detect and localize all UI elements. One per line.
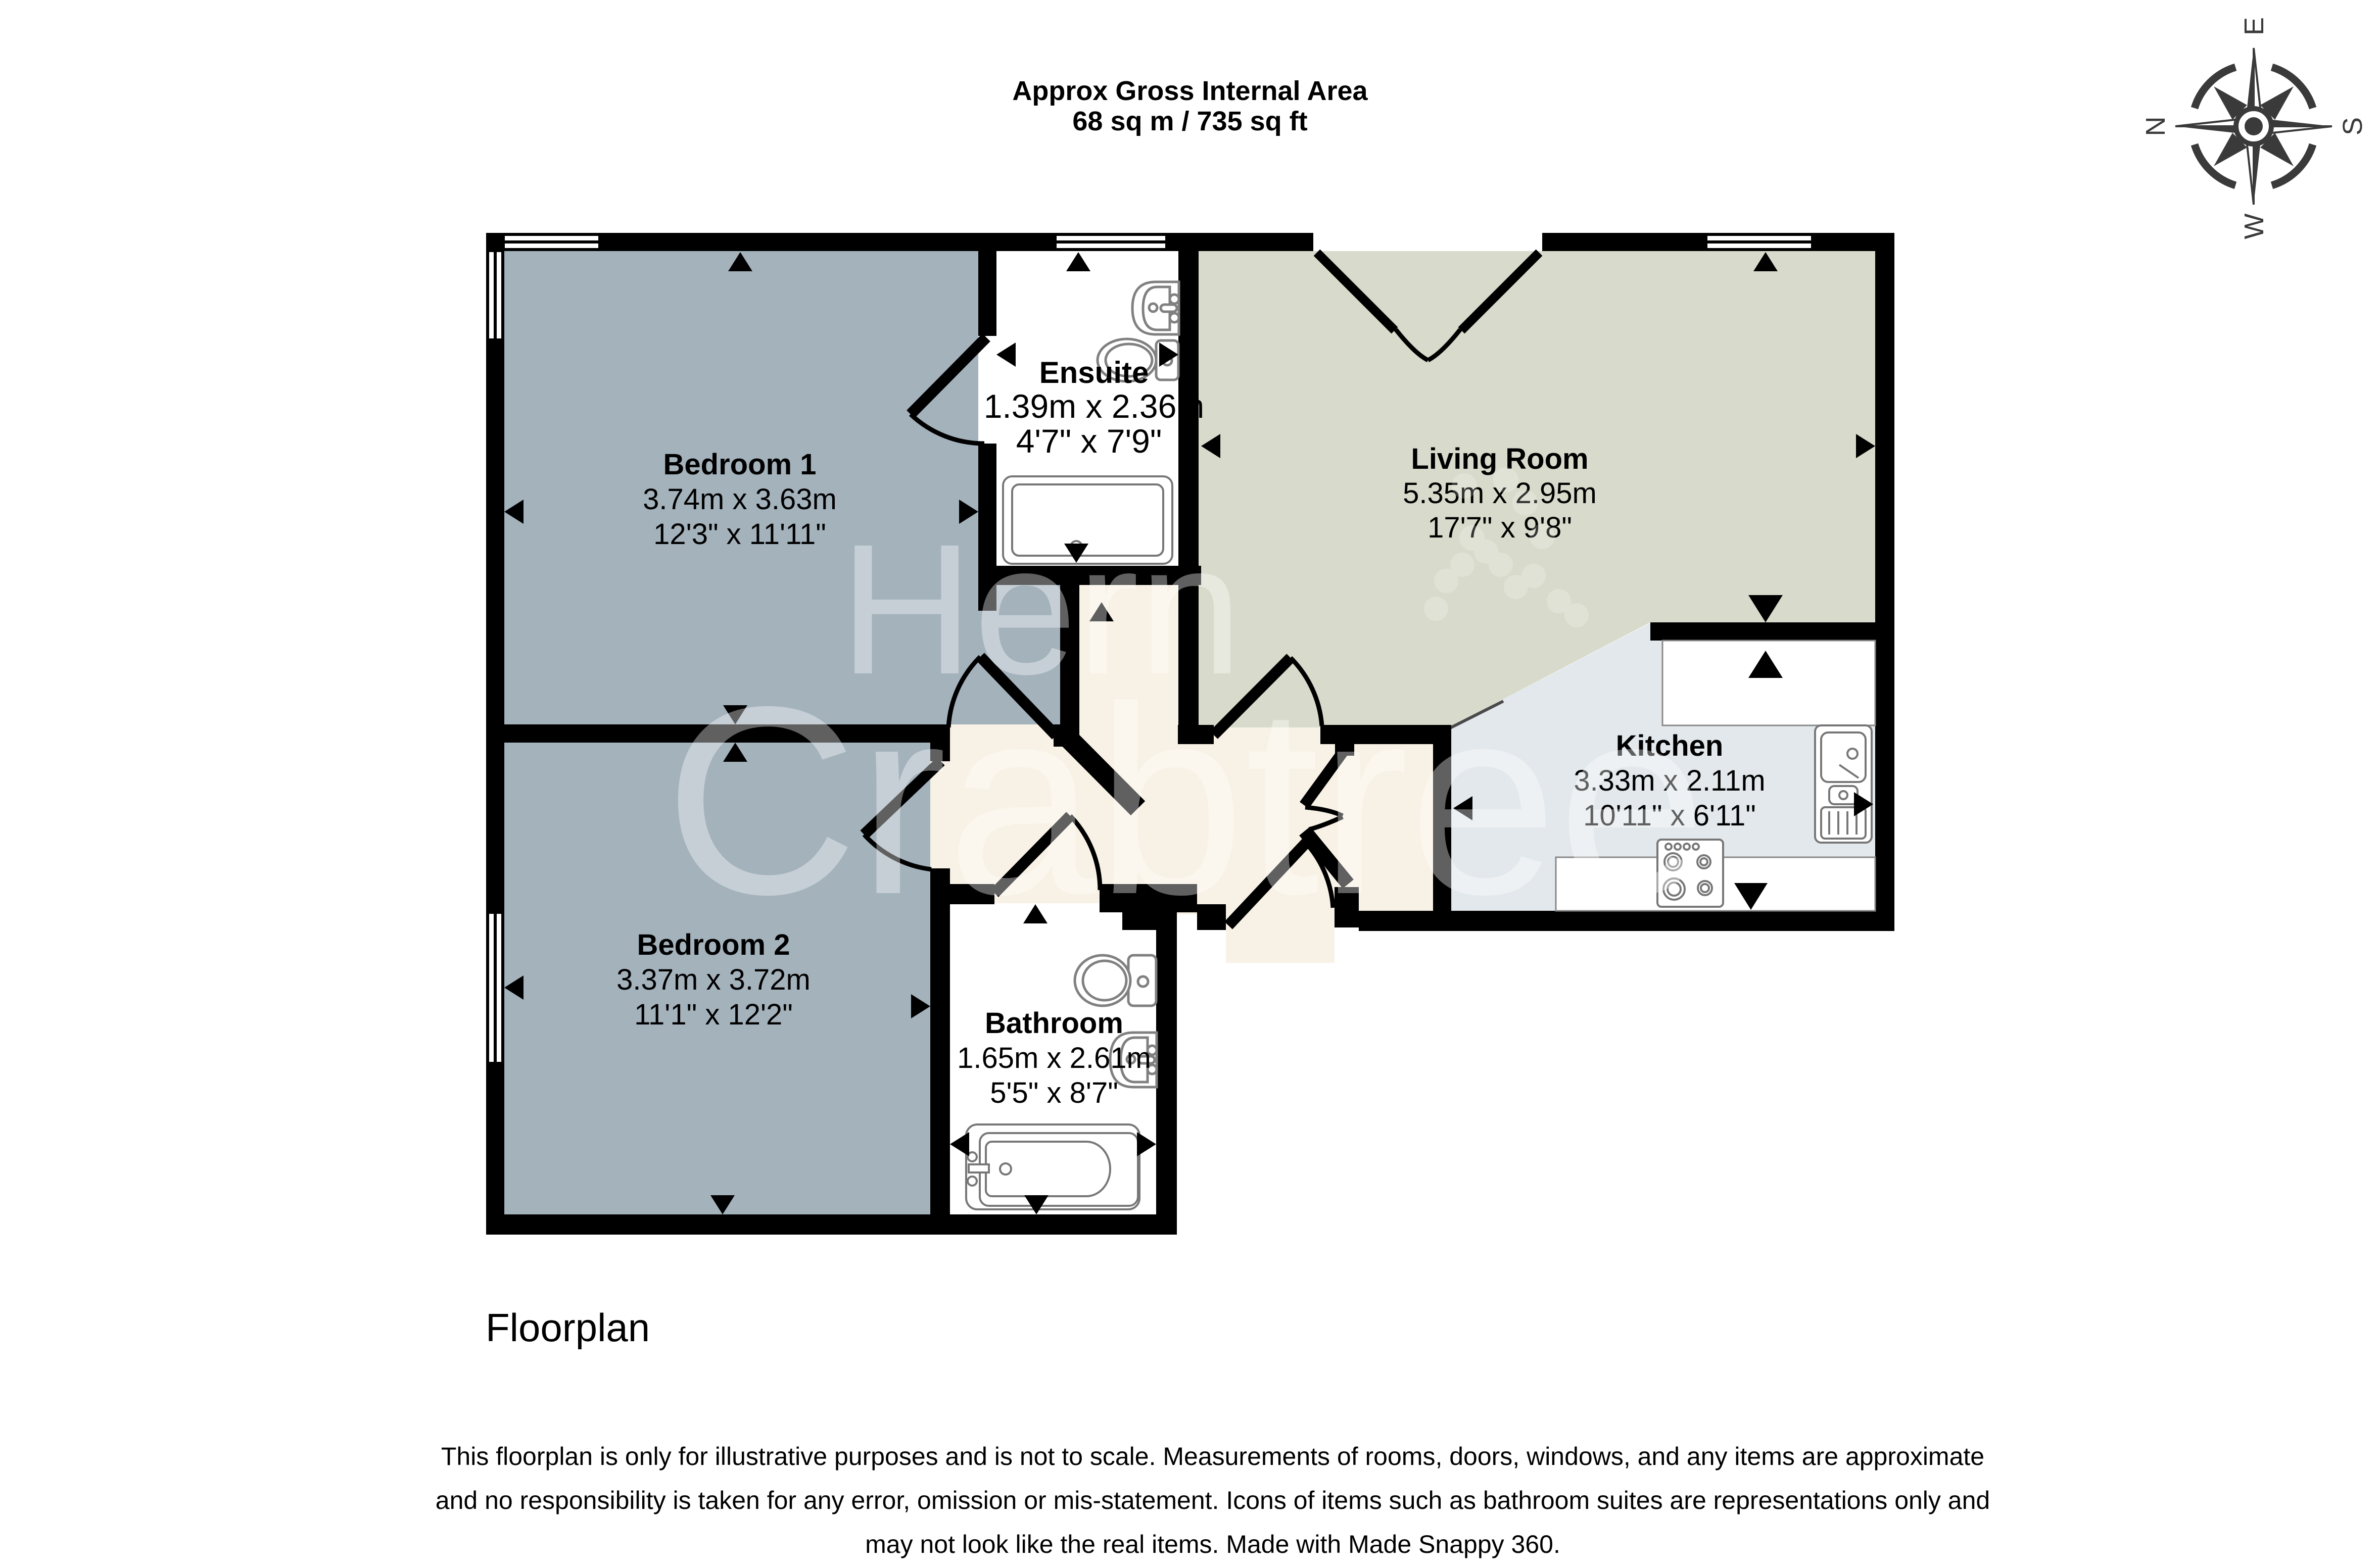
svg-text:1.65m x 2.61m: 1.65m x 2.61m bbox=[957, 1042, 1151, 1074]
svg-text:This floorplan is only for ill: This floorplan is only for illustrative … bbox=[441, 1442, 1984, 1471]
svg-text:11'1" x 12'2": 11'1" x 12'2" bbox=[634, 998, 793, 1031]
svg-text:W: W bbox=[2239, 213, 2269, 239]
svg-text:Bathroom: Bathroom bbox=[985, 1007, 1123, 1040]
svg-text:1.39m x 2.36m: 1.39m x 2.36m bbox=[984, 387, 1205, 425]
svg-text:12'3" x 11'11": 12'3" x 11'11" bbox=[653, 518, 826, 551]
svg-text:68 sq m / 735 sq ft: 68 sq m / 735 sq ft bbox=[1072, 106, 1307, 136]
svg-text:3.37m x 3.72m: 3.37m x 3.72m bbox=[616, 963, 811, 996]
svg-text:E: E bbox=[2239, 17, 2269, 35]
svg-text:Crabtree: Crabtree bbox=[664, 651, 1706, 950]
svg-text:and no responsibility is taken: and no responsibility is taken for any e… bbox=[436, 1486, 1990, 1514]
svg-text:Ensuite: Ensuite bbox=[1039, 356, 1149, 389]
svg-text:4'7" x 7'9": 4'7" x 7'9" bbox=[1016, 422, 1162, 460]
svg-text:Floorplan: Floorplan bbox=[486, 1305, 650, 1350]
svg-text:3.74m x 3.63m: 3.74m x 3.63m bbox=[643, 483, 837, 516]
svg-text:Bedroom 1: Bedroom 1 bbox=[663, 448, 817, 481]
svg-text:Approx Gross Internal Area: Approx Gross Internal Area bbox=[1012, 76, 1368, 106]
svg-text:N: N bbox=[2140, 117, 2171, 136]
svg-text:S: S bbox=[2338, 117, 2368, 135]
svg-text:may not look like the real ite: may not look like the real items. Made w… bbox=[865, 1530, 1560, 1558]
svg-text:5'5" x 8'7": 5'5" x 8'7" bbox=[990, 1076, 1118, 1109]
